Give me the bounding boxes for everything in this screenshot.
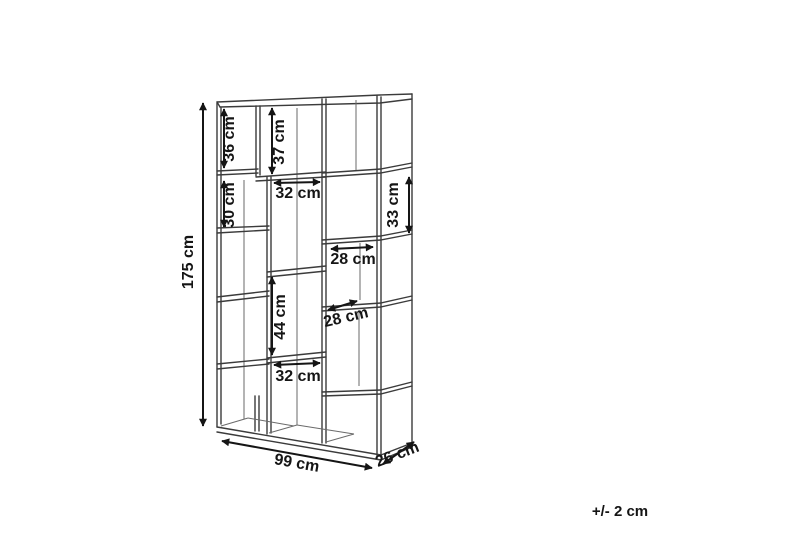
dim-label-cell-32-top: 32 cm [275,185,320,202]
dimension-height: 175 cm [180,103,203,426]
dim-label-cell-32-bottom: 32 cm [275,368,320,385]
dimension-diagram: 175 cm 36 cm 37 cm 30 cm 33 cm [0,0,800,533]
dimension-cell-44: 44 cm [272,277,289,355]
dimension-cell-28-upper: 28 cm [330,247,375,268]
dimension-cell-37: 37 cm [271,108,288,174]
dim-arrow-cell-32-bottom [274,363,320,365]
dim-label-width: 99 cm [273,451,321,476]
tolerance-note: +/- 2 cm [592,503,648,520]
dimension-annotations: 175 cm 36 cm 37 cm 30 cm 33 cm [180,103,422,476]
dim-label-cell-36: 36 cm [221,116,238,161]
dim-label-cell-30: 30 cm [221,182,238,227]
dim-label-cell-28-upper: 28 cm [330,251,375,268]
dim-label-cell-33: 33 cm [385,182,402,227]
dim-arrow-cell-32-top [274,182,320,183]
dimension-cell-33: 33 cm [385,177,409,233]
dim-label-height: 175 cm [180,235,197,289]
dim-label-cell-37: 37 cm [271,119,288,164]
dimension-cell-30: 30 cm [221,181,238,228]
dim-label-cell-28-lower: 28 cm [322,304,370,331]
dim-arrow-cell-28-upper [331,247,373,249]
diagram-canvas: 175 cm 36 cm 37 cm 30 cm 33 cm [0,0,800,533]
dimension-cell-32-top: 32 cm [274,182,321,202]
bookshelf-wireframe [217,94,412,460]
dimension-cell-36: 36 cm [221,109,238,168]
dim-label-cell-44: 44 cm [272,294,289,339]
